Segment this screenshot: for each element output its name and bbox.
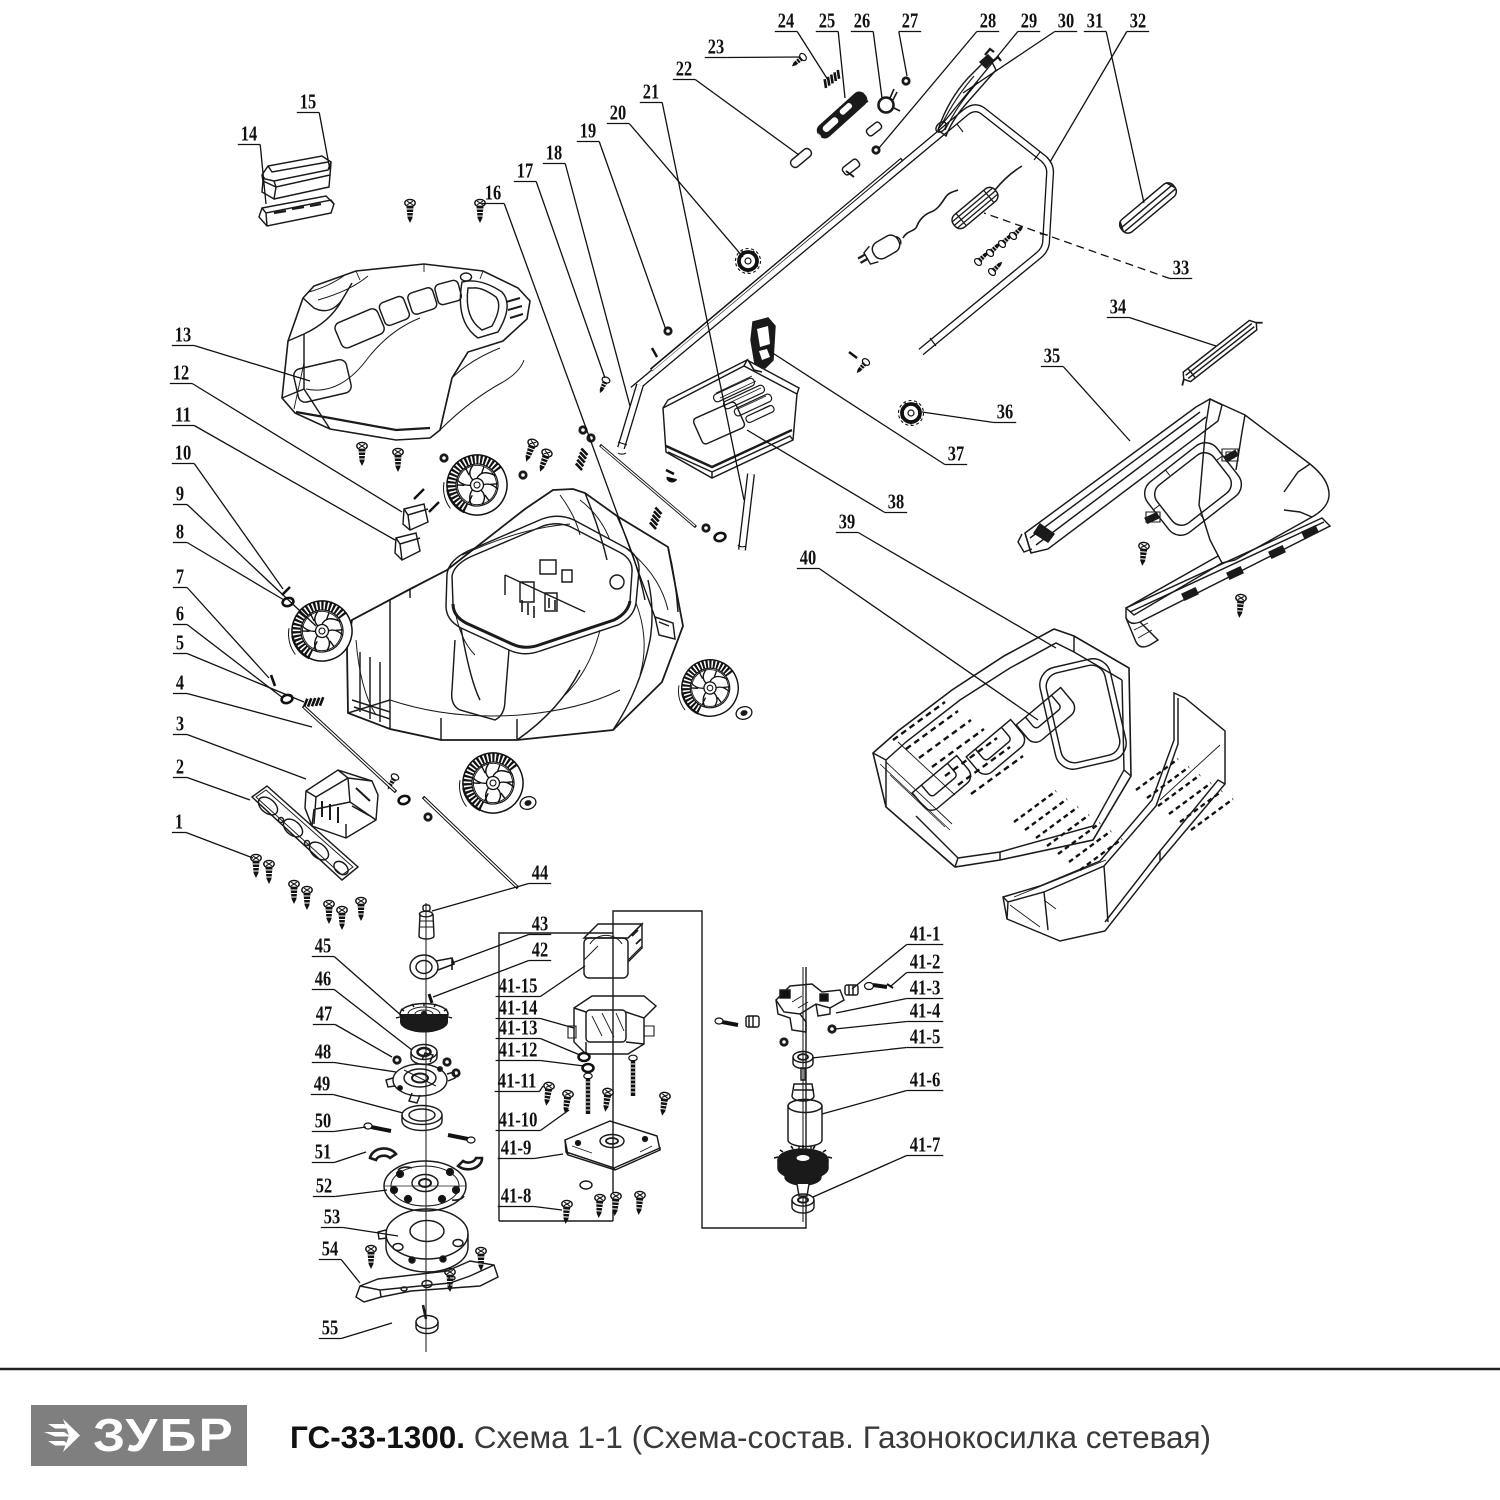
svg-text:49: 49 xyxy=(314,1072,330,1096)
svg-text:7: 7 xyxy=(176,565,184,589)
svg-text:6: 6 xyxy=(176,602,184,626)
svg-text:41-4: 41-4 xyxy=(910,999,941,1023)
svg-text:41-6: 41-6 xyxy=(910,1068,941,1092)
svg-text:31: 31 xyxy=(1087,9,1103,33)
svg-text:4: 4 xyxy=(176,671,185,695)
svg-text:52: 52 xyxy=(316,1174,332,1198)
svg-text:50: 50 xyxy=(315,1109,331,1133)
svg-text:41-13: 41-13 xyxy=(499,1016,538,1040)
svg-text:2: 2 xyxy=(176,755,184,779)
svg-text:28: 28 xyxy=(980,9,996,33)
svg-text:13: 13 xyxy=(175,323,191,347)
svg-text:ГС-33-1300. Схема 1-1 (Схема-с: ГС-33-1300. Схема 1-1 (Схема-состав. Газ… xyxy=(290,1419,1211,1455)
svg-text:51: 51 xyxy=(315,1140,331,1164)
svg-text:34: 34 xyxy=(1110,295,1127,319)
svg-text:55: 55 xyxy=(322,1316,338,1340)
svg-text:36: 36 xyxy=(997,400,1013,424)
svg-text:39: 39 xyxy=(839,510,855,534)
svg-text:45: 45 xyxy=(315,934,331,958)
svg-text:11: 11 xyxy=(175,403,191,427)
svg-text:41-11: 41-11 xyxy=(498,1069,537,1093)
svg-text:29: 29 xyxy=(1021,9,1037,33)
svg-text:41-7: 41-7 xyxy=(910,1133,941,1157)
svg-text:41-12: 41-12 xyxy=(499,1038,538,1062)
svg-text:3: 3 xyxy=(176,712,184,736)
svg-text:10: 10 xyxy=(175,441,191,465)
svg-text:54: 54 xyxy=(322,1237,339,1261)
svg-text:26: 26 xyxy=(854,9,870,33)
svg-text:9: 9 xyxy=(176,482,184,506)
svg-text:ЗУБР: ЗУБР xyxy=(93,1409,235,1461)
svg-text:19: 19 xyxy=(580,119,596,143)
svg-text:41-2: 41-2 xyxy=(910,950,941,974)
svg-text:17: 17 xyxy=(517,159,533,183)
svg-text:8: 8 xyxy=(176,520,184,544)
svg-text:41-10: 41-10 xyxy=(499,1108,538,1132)
svg-text:5: 5 xyxy=(176,631,184,655)
svg-text:14: 14 xyxy=(241,122,258,146)
svg-text:42: 42 xyxy=(532,938,548,962)
svg-text:33: 33 xyxy=(1173,256,1189,280)
svg-text:1: 1 xyxy=(175,810,183,834)
svg-text:12: 12 xyxy=(173,361,189,385)
svg-text:46: 46 xyxy=(315,967,331,991)
svg-text:41-5: 41-5 xyxy=(910,1025,941,1049)
svg-text:40: 40 xyxy=(800,546,816,570)
svg-text:35: 35 xyxy=(1044,344,1060,368)
svg-text:21: 21 xyxy=(643,80,659,104)
svg-text:16: 16 xyxy=(485,181,501,205)
svg-text:41-9: 41-9 xyxy=(501,1136,532,1160)
svg-text:18: 18 xyxy=(546,141,562,165)
svg-text:22: 22 xyxy=(676,57,692,81)
svg-text:41-8: 41-8 xyxy=(501,1184,532,1208)
svg-text:37: 37 xyxy=(948,442,964,466)
svg-text:41-1: 41-1 xyxy=(910,922,941,946)
svg-text:15: 15 xyxy=(300,90,316,114)
svg-text:47: 47 xyxy=(316,1002,332,1026)
svg-text:27: 27 xyxy=(902,9,918,33)
svg-text:23: 23 xyxy=(708,35,724,59)
svg-text:38: 38 xyxy=(888,490,904,514)
svg-text:20: 20 xyxy=(610,101,626,125)
svg-text:24: 24 xyxy=(778,9,795,33)
svg-text:44: 44 xyxy=(532,861,549,885)
svg-text:30: 30 xyxy=(1058,9,1074,33)
svg-text:25: 25 xyxy=(819,9,835,33)
svg-text:41-3: 41-3 xyxy=(910,976,941,1000)
svg-text:53: 53 xyxy=(324,1205,340,1229)
svg-text:43: 43 xyxy=(532,912,548,936)
svg-text:41-15: 41-15 xyxy=(499,974,538,998)
svg-text:32: 32 xyxy=(1130,9,1146,33)
svg-text:48: 48 xyxy=(315,1040,331,1064)
